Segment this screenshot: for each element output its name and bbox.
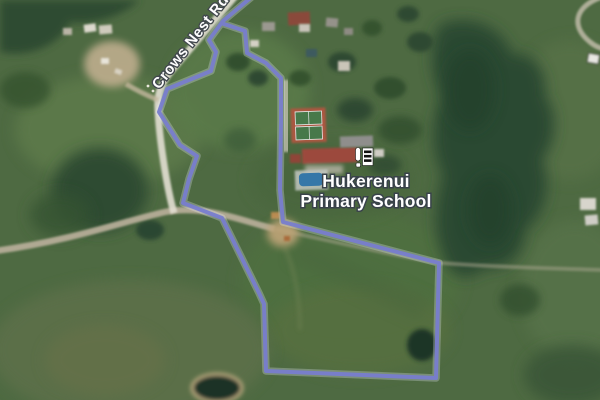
poi-name-line1: Hukerenui: [322, 171, 409, 191]
satellite-map[interactable]: Crows Nest Rd Hukerenui Primary School: [0, 0, 600, 400]
tennis-courts: [290, 107, 326, 143]
school-driveway: [285, 80, 287, 152]
poi-name-line2: Primary School: [300, 191, 431, 211]
map-canvas: Crows Nest Rd Hukerenui Primary School: [0, 0, 600, 400]
school-icon: [356, 148, 374, 168]
pond: [407, 329, 437, 361]
pond: [192, 374, 242, 400]
